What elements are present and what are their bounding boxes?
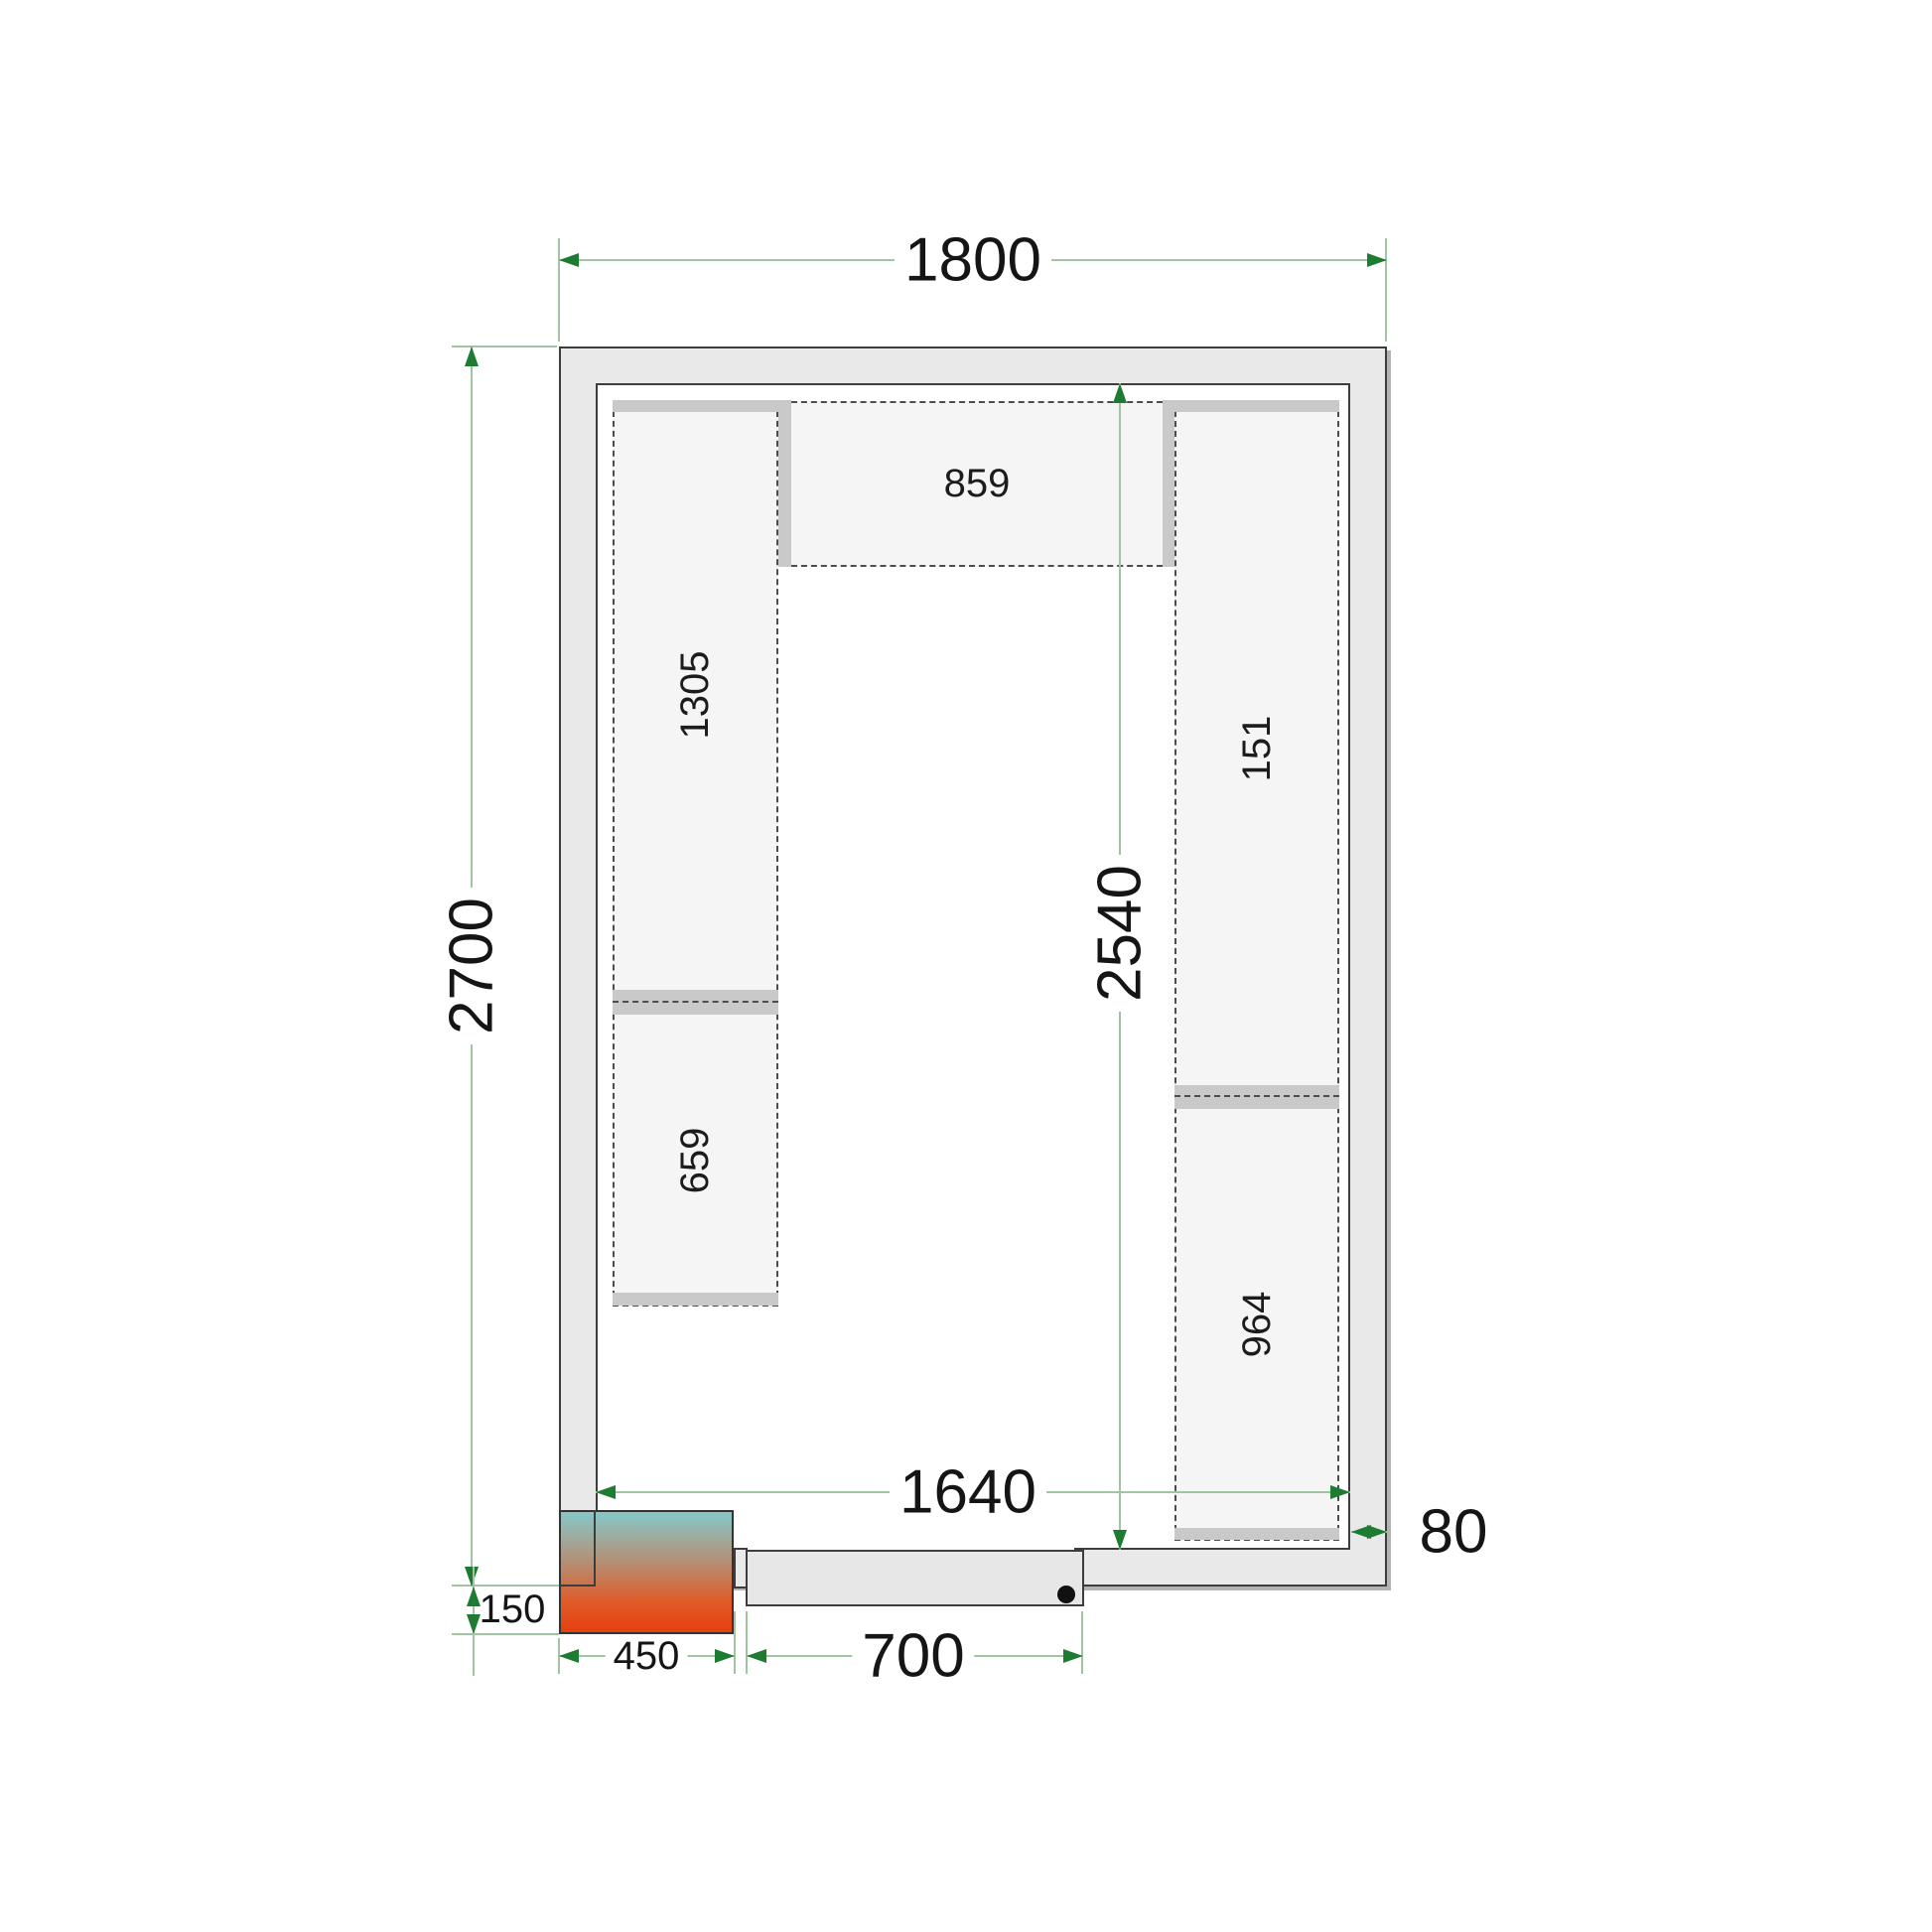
dim-outer-height-arrow-top-icon [465,346,479,366]
dim-outer-width-arrow-right-icon [1367,253,1387,267]
wall-edge-over-unit-horizontal [559,1585,596,1587]
shelf-bar-left-bottom [613,1293,778,1306]
dim-wall-thickness-label: 80 [1410,1499,1498,1564]
dim-inner-width-arrow-left-icon [596,1485,616,1499]
shelf-right-column [1174,401,1339,1541]
cooling-unit [559,1510,734,1634]
dim-unit-width-arrow-right-icon [715,1649,735,1663]
dim-inner-height-label: 2540 [1087,855,1152,1012]
shelf-bar-right-vertical [1163,400,1174,567]
dim-door-width-ext-right [1081,1611,1083,1674]
shelf-left-upper-label: 1305 [675,651,715,740]
shelf-left-lower-label: 659 [675,1128,715,1194]
dim-door-width-ext-left [746,1611,748,1674]
door-leaf [746,1550,1084,1606]
dim-unit-protrusion-ext-bottom [452,1633,559,1635]
dim-wall-thickness-arrow-right-icon [1367,1525,1387,1539]
dim-unit-protrusion-label: 150 [472,1588,554,1630]
dim-unit-width-ext-right [734,1611,736,1674]
shelf-right-lower-label: 964 [1237,1292,1277,1358]
wall-edge-over-unit-vertical [594,1510,596,1587]
shelf-bar-right-divider [1174,1085,1339,1109]
dim-inner-width-label: 1640 [890,1459,1046,1524]
shelf-bar-right-top [1163,400,1339,412]
shelf-right-divider-dash [1174,1095,1339,1097]
dim-outer-height-label: 2700 [439,888,503,1044]
dim-door-width-arrow-left-icon [747,1649,766,1663]
dim-door-width-label: 700 [852,1623,974,1688]
dim-outer-width-arrow-left-icon [559,253,579,267]
shelf-top-label: 859 [944,464,1011,503]
dim-inner-height-arrow-bottom-icon [1113,1530,1127,1550]
shelf-bar-left-top [613,400,791,412]
dim-outer-width-label: 1800 [895,227,1051,292]
shelf-bar-left-vertical [778,400,791,567]
dim-unit-width-label: 450 [606,1635,688,1677]
door-handle-dot [1057,1586,1075,1603]
shelf-bar-right-bottom [1174,1528,1339,1540]
shelf-right-upper-label: 151 [1237,716,1277,782]
floor-plan-canvas: 1305 659 859 151 964 1800 2700 2540 1640… [0,0,1932,1932]
dim-inner-height-arrow-top-icon [1113,383,1127,403]
dim-door-width-arrow-right-icon [1063,1649,1083,1663]
dim-inner-width-arrow-right-icon [1330,1485,1350,1499]
dim-outer-height-arrow-bottom-icon [465,1567,479,1587]
shelf-left-divider-dash [613,1001,778,1003]
dim-unit-width-arrow-left-icon [559,1649,579,1663]
